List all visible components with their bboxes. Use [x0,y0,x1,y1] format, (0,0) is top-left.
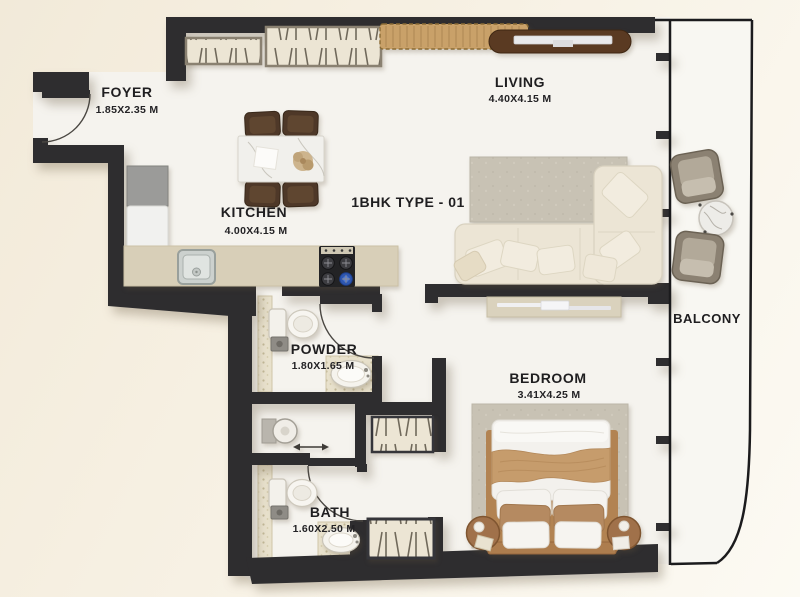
tv-console [489,30,631,53]
bath-dims: 1.60X2.50 M [293,523,356,535]
wall-powder-top [282,286,380,296]
dining-chair [283,110,319,136]
balcony-label: BALCONY [673,311,741,326]
dining-chair [244,111,280,138]
wall-kitchen-corner [108,286,256,316]
powder-label: POWDER [291,341,358,357]
balcony-chair [671,230,725,284]
balcony-table [698,201,733,235]
bed [486,420,618,554]
bedroom-console [487,297,621,317]
floorplan-svg: FOYER 1.85X2.35 M KITCHEN 4.00X4.15 M LI… [0,0,800,597]
bed-pillow-front [555,522,601,549]
foyer-dims: 1.85X2.35 M [96,104,159,116]
balcony-chair [669,148,725,205]
kitchen-sink [178,250,215,284]
kitchen-dims: 4.00X4.15 M [225,225,288,237]
wardrobe-entry-large [266,27,381,66]
kitchen-label: KITCHEN [221,204,287,220]
bedroom-dims: 3.41X4.25 M [518,389,581,401]
foyer-door-leaf [42,90,90,98]
living-label: LIVING [495,74,545,90]
nightstand-left [467,517,500,551]
kitchen-counter [124,246,398,286]
wall-shower-bath-divider [252,453,310,465]
wardrobe-entry-small [186,38,261,64]
wardrobe-bedroom [368,519,434,558]
stove [319,246,355,287]
living-dims: 4.40X4.15 M [489,93,552,105]
unit-type-title: 1BHK TYPE - 01 [351,194,465,210]
wall-foyer-stub [33,72,89,92]
wall-kitchen-left [108,145,124,290]
balcony-floor [671,21,751,563]
table-napkin [254,147,279,170]
sofa-pillow [582,253,618,282]
bed-pillow-front [503,522,549,549]
wall-window-pier [648,283,671,304]
wall-column-left [228,314,252,576]
wardrobe-hall [372,417,433,452]
wall-divider-stub [425,284,438,303]
fridge [127,206,168,249]
bath-door-leaf [308,458,363,466]
sofa-pillow [536,245,575,276]
powder-door-leaf [320,296,374,304]
bath-label: BATH [310,504,350,520]
bedroom-label: BEDROOM [509,370,586,386]
powder-dims: 1.80X1.65 M [292,360,355,372]
nightstand-right [608,517,641,550]
floorplan-canvas: FOYER 1.85X2.35 M KITCHEN 4.00X4.15 M LI… [0,0,800,597]
wall-top-step [166,17,186,81]
wall-living-bedroom-divider [425,284,658,297]
wall-hall-stub [364,402,433,415]
foyer-label: FOYER [101,84,152,100]
dining-chair [283,181,319,207]
kitchen-tall-unit [127,166,168,206]
shower-fixture [262,419,297,443]
balcony-bottom-line [671,563,717,564]
